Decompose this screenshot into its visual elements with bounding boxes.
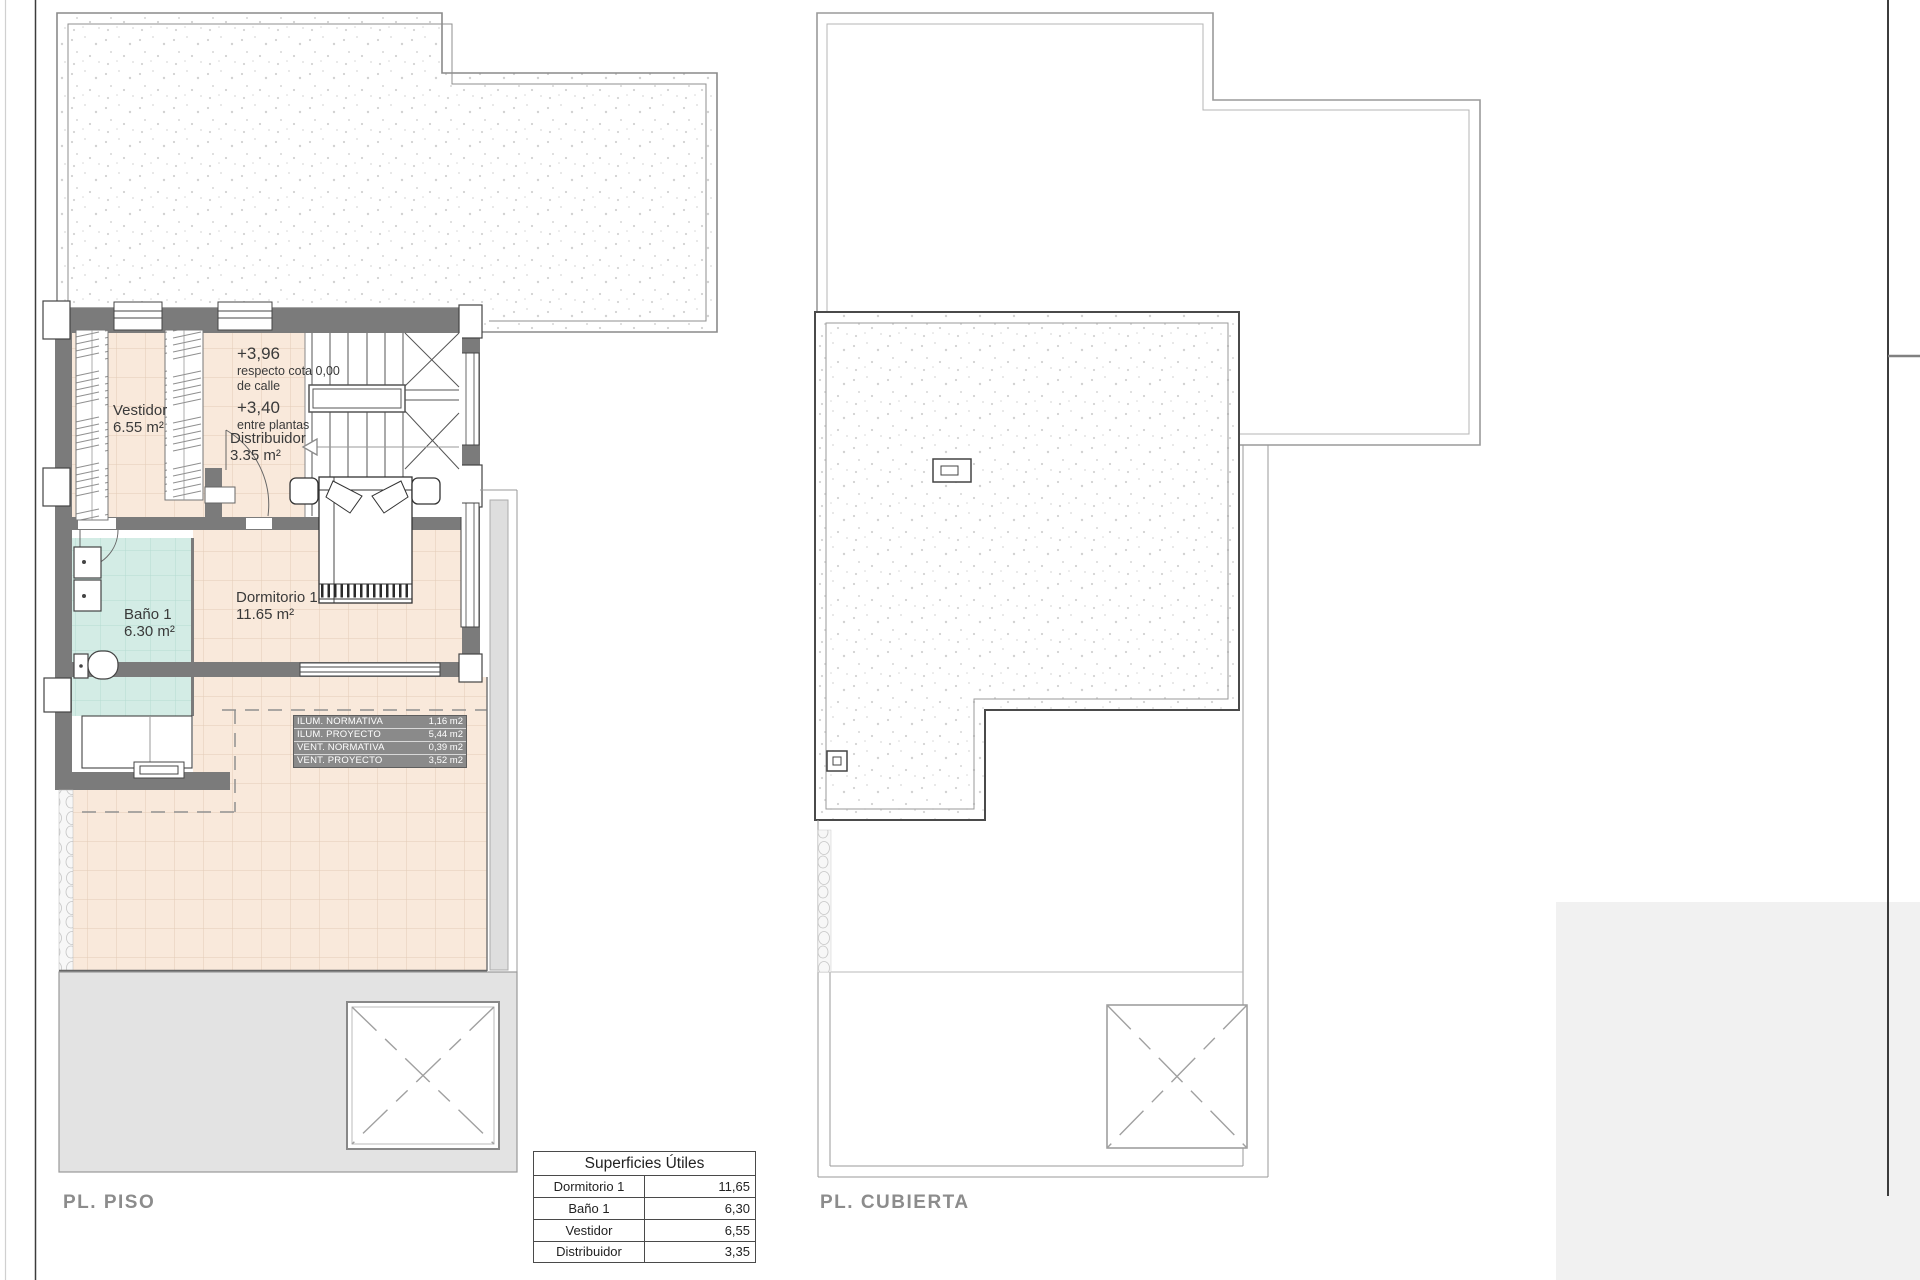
superficies-title: Superficies Útiles [534, 1152, 755, 1176]
level-between-value: +3,40 [237, 398, 309, 418]
vent-table-row: VENT. PROYECTO 3,52 m2 [294, 754, 466, 767]
piso-patio [59, 972, 517, 1172]
superficies-room: Distribuidor [534, 1242, 645, 1262]
vent-table-row: VENT. NORMATIVA 0,39 m2 [294, 741, 466, 754]
superficies-value: 6,55 [645, 1220, 755, 1241]
vent-table-row: ILUM. PROYECTO 5,44 m2 [294, 728, 466, 741]
distribuidor-label: Distribuidor 3.35 m² [230, 430, 306, 464]
bano-area: 6.30 m² [124, 623, 175, 640]
plan-piso [43, 13, 717, 1172]
vent-row-label: ILUM. PROYECTO [294, 729, 429, 741]
terrace-window [300, 663, 440, 676]
cubierta-stone-strip [818, 830, 831, 972]
level-upper-value: +3,96 [237, 344, 340, 364]
vent-row-value: 0,39 m2 [429, 742, 466, 754]
floorplan-drawing [0, 0, 1920, 1280]
piso-roof-area [57, 13, 717, 332]
dormitorio-label: Dormitorio 1 11.65 m² [236, 589, 318, 623]
vent-row-value: 3,52 m2 [429, 755, 466, 767]
level-annotation-between: +3,40 entre plantas [237, 398, 309, 433]
dormitorio-name: Dormitorio 1 [236, 589, 318, 606]
vent-row-value: 1,16 m2 [429, 716, 466, 728]
dormitorio-area: 11.65 m² [236, 606, 318, 623]
superficies-row: Distribuidor 3,35 [534, 1242, 755, 1262]
superficies-room: Baño 1 [534, 1198, 645, 1219]
bano-label: Baño 1 6.30 m² [124, 606, 175, 640]
superficies-value: 6,30 [645, 1198, 755, 1219]
vestidor-label: Vestidor 6.55 m² [113, 402, 167, 436]
vent-row-label: VENT. NORMATIVA [294, 742, 429, 754]
distribuidor-area: 3.35 m² [230, 447, 306, 464]
plan-piso-title: PL. PISO [63, 1192, 155, 1214]
vent-row-label: VENT. PROYECTO [294, 755, 429, 767]
cubierta-skylight [1107, 1005, 1247, 1148]
bano-name: Baño 1 [124, 606, 175, 623]
sheet-shadow-region [1556, 902, 1920, 1280]
level-upper-line1: respecto cota 0,00 [237, 364, 340, 379]
vestidor-area: 6.55 m² [113, 419, 167, 436]
vent-row-label: ILUM. NORMATIVA [294, 716, 429, 728]
plan-cubierta-title: PL. CUBIERTA [820, 1192, 970, 1214]
superficies-row: Vestidor 6,55 [534, 1220, 755, 1242]
piso-stone-strip [59, 790, 73, 971]
level-between-line1: entre plantas [237, 418, 309, 433]
cubierta-gravel-roof [815, 312, 1239, 820]
level-annotation-upper: +3,96 respecto cota 0,00 de calle [237, 344, 340, 394]
vent-row-value: 5,44 m2 [429, 729, 466, 741]
superficies-table: Superficies Útiles Dormitorio 1 11,65 Ba… [533, 1151, 756, 1263]
superficies-value: 3,35 [645, 1242, 755, 1262]
superficies-row: Baño 1 6,30 [534, 1198, 755, 1220]
level-upper-line2: de calle [237, 379, 340, 394]
superficies-value: 11,65 [645, 1176, 755, 1197]
plan-cubierta [815, 13, 1480, 1177]
vent-table-row: ILUM. NORMATIVA 1,16 m2 [294, 716, 466, 728]
superficies-row: Dormitorio 1 11,65 [534, 1176, 755, 1198]
vestidor-name: Vestidor [113, 402, 167, 419]
vent-ilum-table: ILUM. NORMATIVA 1,16 m2 ILUM. PROYECTO 5… [293, 715, 467, 768]
superficies-room: Dormitorio 1 [534, 1176, 645, 1197]
floorplan-sheet: Vestidor 6.55 m² Baño 1 6.30 m² Dormitor… [0, 0, 1920, 1280]
superficies-room: Vestidor [534, 1220, 645, 1241]
